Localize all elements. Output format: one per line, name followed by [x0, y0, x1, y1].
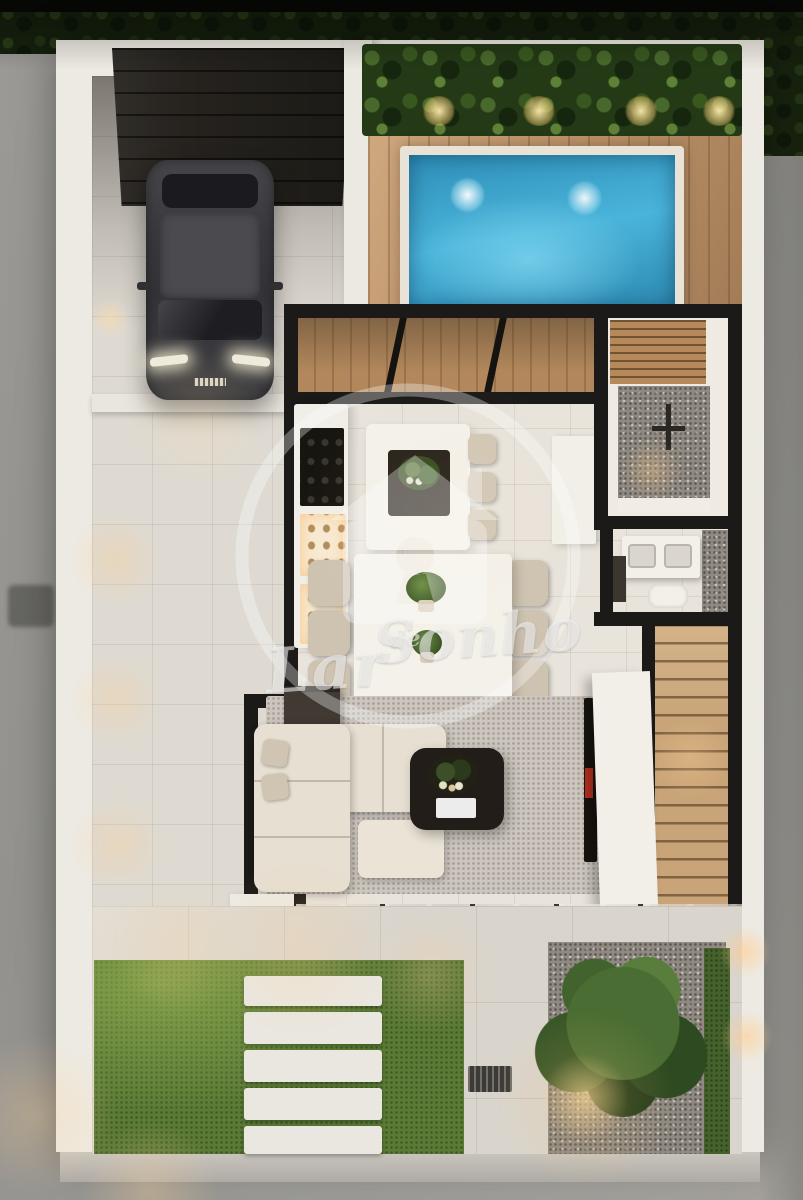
- garden-light: [522, 96, 556, 126]
- front-curb: [60, 1152, 760, 1182]
- glass-mullion: [484, 316, 508, 394]
- cooktop: [300, 428, 344, 506]
- plant-pot: [420, 652, 434, 663]
- garden-light: [422, 96, 456, 126]
- car: [146, 160, 274, 400]
- sink: [664, 544, 692, 568]
- dining-chair: [308, 560, 350, 606]
- bathroom-vanity: [622, 536, 700, 578]
- car-mirror-left: [137, 282, 150, 290]
- interior-wall-east: [728, 304, 742, 910]
- stepping-stone: [244, 976, 382, 1006]
- stepping-stone: [244, 1126, 382, 1154]
- shower-wall-south: [600, 516, 742, 529]
- north-glass-wall: [296, 316, 596, 394]
- shower-ledge: [618, 498, 710, 512]
- swimming-pool: [400, 146, 684, 318]
- car-mirror-right: [270, 282, 283, 290]
- shower-wall-west: [594, 316, 608, 530]
- license-plate: [190, 376, 230, 388]
- dark-top-edge: [0, 0, 803, 12]
- shower-mosaic-wall: [618, 386, 710, 512]
- car-headlight-right: [232, 354, 270, 367]
- tv-partition-wall: [592, 671, 658, 909]
- tv-red-accent: [585, 768, 593, 798]
- street-stain: [8, 585, 54, 627]
- island-floral-arrangement: [398, 456, 440, 490]
- sofa-pillow: [261, 773, 290, 802]
- dining-chair: [506, 560, 548, 606]
- bar-stool: [468, 434, 496, 464]
- dining-chair: [506, 610, 548, 656]
- toilet: [648, 584, 688, 608]
- stair-wall-north: [594, 612, 742, 626]
- car-rear-window: [162, 174, 258, 208]
- tree-canopy: [528, 938, 718, 1128]
- stepping-stone: [244, 1088, 382, 1120]
- glass-door-bottom-rail: [290, 392, 602, 404]
- garden-light: [702, 96, 736, 126]
- plant-pot: [418, 600, 434, 612]
- garden-light: [624, 96, 658, 126]
- interior-wall-north: [284, 304, 742, 318]
- shower-slatted-ceiling: [610, 320, 706, 384]
- car-windshield: [158, 300, 262, 340]
- sink: [628, 544, 656, 568]
- dining-chair: [308, 610, 350, 656]
- street-shadow-right: [758, 150, 803, 1200]
- staircase: [655, 624, 728, 906]
- car-headlight-left: [150, 354, 188, 367]
- pool-water: [409, 155, 675, 309]
- stepping-stone: [244, 1012, 382, 1044]
- perimeter-hedge-right: [760, 4, 803, 156]
- drain-grate: [468, 1066, 512, 1092]
- bar-stool: [468, 510, 496, 540]
- bath-runner-mat: [612, 556, 626, 602]
- coffee-table-flowers: [428, 754, 478, 794]
- toilet-room-mosaic: [702, 530, 728, 612]
- toilet-wall-west: [600, 516, 613, 626]
- floorplan-render: Lar de Sonho: [0, 0, 803, 1200]
- sofa-pillow: [260, 738, 289, 767]
- car-roof: [160, 212, 260, 298]
- shower-fixture-arm: [652, 426, 685, 431]
- tall-cabinet-fridge: [552, 436, 596, 544]
- stepping-stone: [244, 1050, 382, 1082]
- glass-mullion: [384, 316, 408, 394]
- bar-stool: [468, 472, 496, 502]
- coffee-table-tray: [436, 798, 476, 818]
- planter-hedge: [362, 44, 742, 136]
